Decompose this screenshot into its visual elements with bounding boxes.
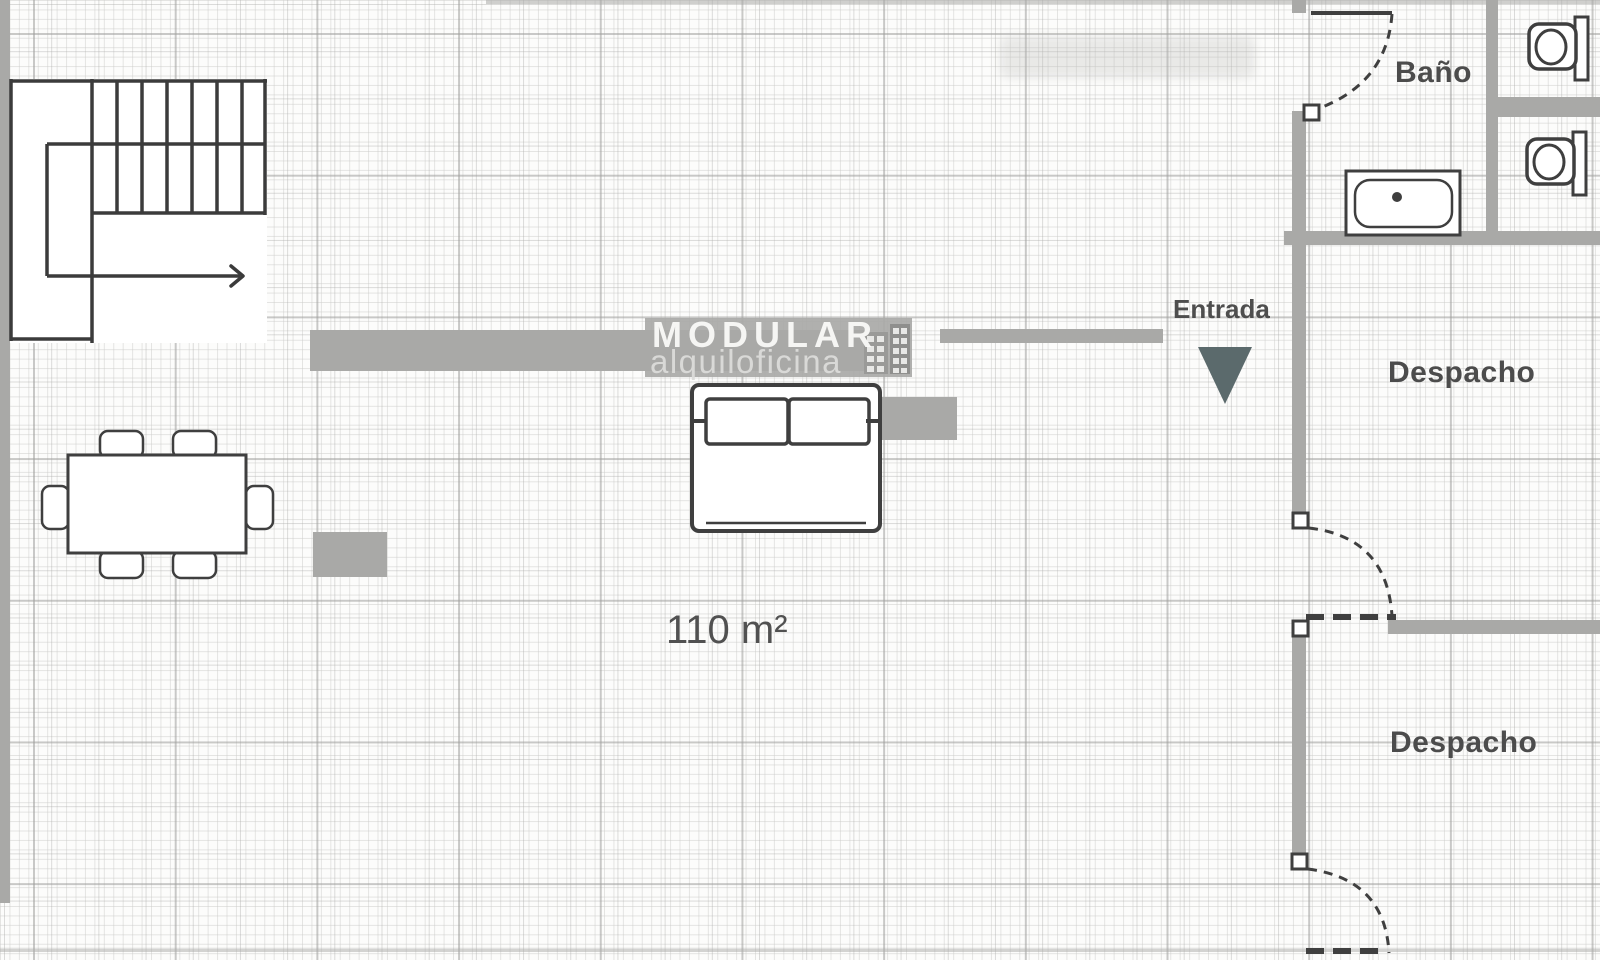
wall-bathroom-divider	[1486, 0, 1498, 240]
chair-icon	[246, 486, 273, 529]
wall-top-edge	[486, 0, 1600, 4]
sofa-icon	[692, 385, 880, 531]
wall-left	[0, 0, 10, 903]
office1-label: Despacho	[1388, 356, 1535, 390]
wall-bar-thin	[940, 329, 1163, 343]
bathroom-label: Baño	[1395, 56, 1472, 90]
wall-main-vertical-top	[1292, 0, 1306, 13]
chair-icon	[42, 486, 69, 529]
floor-plan-drawing	[0, 0, 1600, 960]
chair-icon	[100, 551, 143, 578]
toilet-icon	[1527, 132, 1586, 195]
table-top	[68, 455, 246, 553]
chair-icon	[173, 551, 216, 578]
toilet-icon	[1529, 17, 1588, 80]
watermark-subtitle: alquiloficina	[650, 343, 842, 381]
wall-stall-divider	[1498, 97, 1600, 117]
wall-main-vertical-low	[1292, 633, 1306, 857]
office2-label: Despacho	[1390, 726, 1537, 760]
wall-block-right-of-sofa	[881, 397, 957, 440]
staircase-icon	[10, 79, 267, 343]
wall-main-vertical-mid	[1292, 111, 1306, 518]
meeting-table-icon	[42, 431, 273, 578]
wall-block-left	[313, 532, 387, 577]
entrance-arrow-icon	[1198, 347, 1252, 404]
faded-smudge	[1000, 36, 1255, 78]
bathtub-icon	[1346, 171, 1460, 235]
entrance-label: Entrada	[1173, 294, 1270, 325]
wall-office-divider	[1388, 620, 1600, 634]
floor-plan: Baño Entrada Despacho Despacho 110 m² MO…	[0, 0, 1600, 960]
office1-door-icon	[1293, 513, 1396, 636]
area-label: 110 m²	[666, 608, 788, 653]
office2-door-icon	[1292, 854, 1389, 953]
bathroom-door-icon	[1304, 13, 1392, 120]
